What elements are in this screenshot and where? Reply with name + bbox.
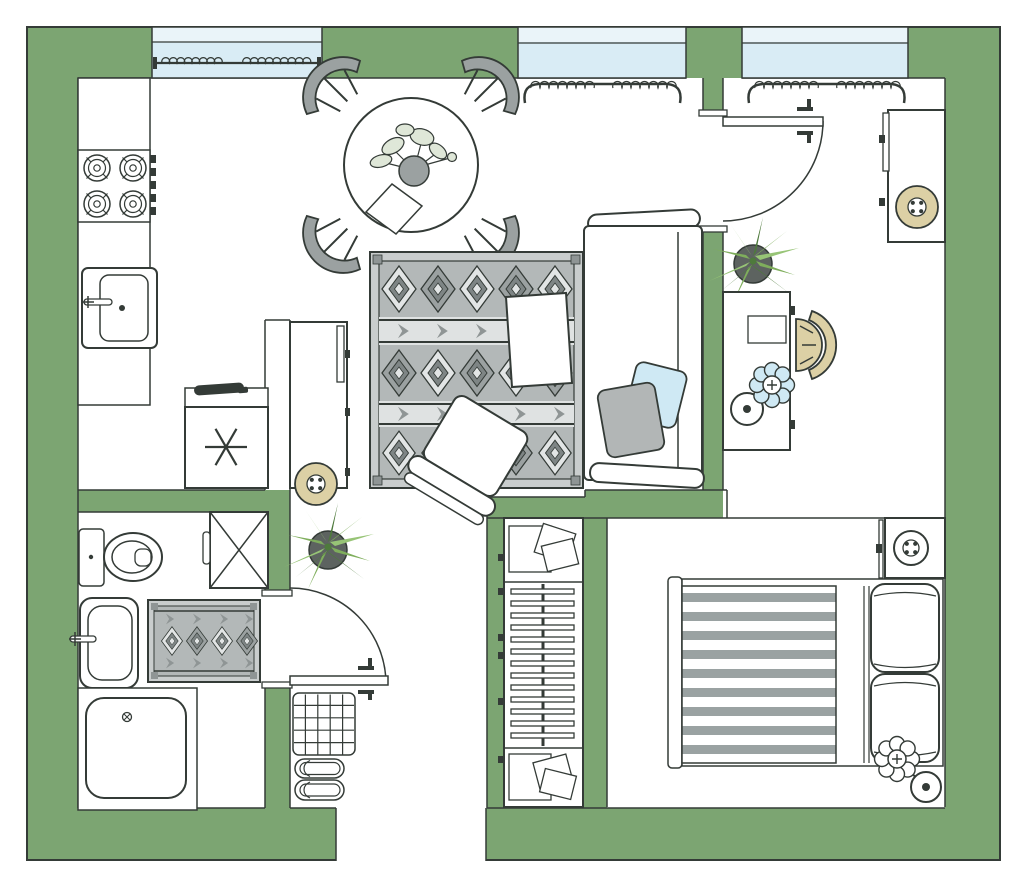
stool-entry bbox=[896, 186, 938, 228]
wall-closet-right bbox=[583, 518, 607, 808]
washing-machine bbox=[203, 512, 268, 588]
wall-left bbox=[27, 27, 78, 860]
kitchen-sink bbox=[82, 268, 157, 348]
folded-clothes-bottom bbox=[509, 754, 576, 800]
wall-bottom bbox=[27, 808, 1000, 860]
sofa bbox=[584, 209, 704, 488]
wardrobe-closet bbox=[498, 518, 583, 807]
bathroom-sink bbox=[69, 598, 138, 688]
kitchen-counter bbox=[78, 78, 150, 405]
window-kitchen bbox=[152, 27, 322, 78]
shower bbox=[78, 688, 197, 810]
entrance-gap bbox=[336, 808, 486, 862]
floor-plan-drawing bbox=[0, 0, 1024, 887]
nightstand bbox=[876, 518, 945, 578]
drain bbox=[119, 305, 125, 311]
wall-closet-left bbox=[487, 518, 504, 808]
door-leaf bbox=[290, 676, 388, 685]
refrigerator bbox=[185, 407, 268, 488]
wall-kitchen-bathroom bbox=[78, 490, 290, 512]
floor-plan-canvas bbox=[0, 0, 1024, 887]
striped-duvet bbox=[682, 586, 836, 763]
wall-right bbox=[945, 27, 1000, 860]
desk-drawer bbox=[748, 316, 786, 343]
bath-mat bbox=[148, 600, 260, 682]
coffee-table bbox=[506, 293, 572, 387]
door-leaf bbox=[723, 117, 823, 126]
stove bbox=[78, 150, 156, 222]
bed-foot-rail bbox=[668, 577, 682, 768]
plant-pot bbox=[399, 156, 429, 186]
stool-living bbox=[295, 463, 337, 505]
doormat bbox=[293, 693, 355, 755]
wall-over-closet bbox=[487, 497, 607, 518]
toilet bbox=[79, 529, 162, 586]
pillow-gray bbox=[597, 381, 666, 458]
bed-pillow bbox=[871, 584, 939, 672]
